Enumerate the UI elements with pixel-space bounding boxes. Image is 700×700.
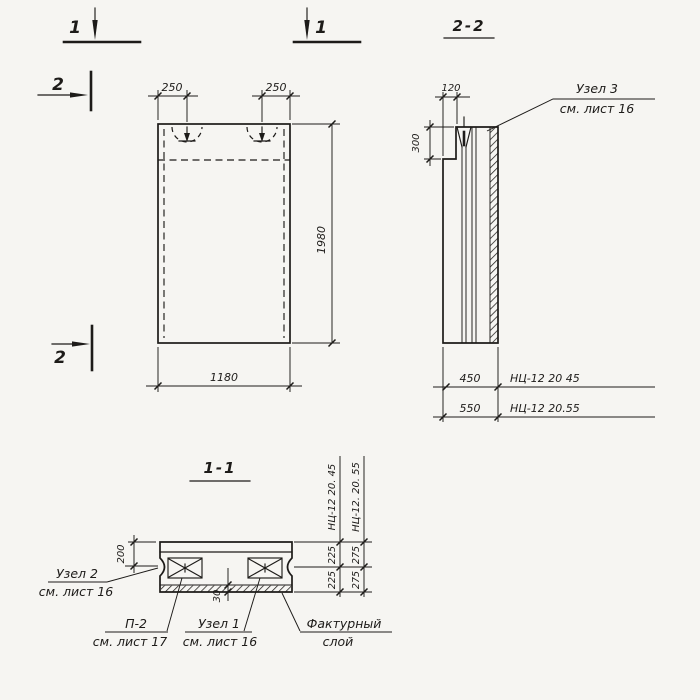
callout-node1-title: Узел 1 (198, 616, 240, 631)
callout-facing-subtitle: слой (323, 634, 354, 649)
dim-450-value: 450 (460, 372, 481, 385)
cut-2-top-label: 2 (52, 75, 64, 95)
callout-node2-title: Узел 2 (56, 566, 98, 581)
callout-p2-sheet-ref: см. лист 17 (93, 634, 167, 649)
dim-550-value: 550 (460, 402, 481, 415)
dim-225-top-value: 225 (327, 546, 338, 564)
technical-drawing-canvas: 1 1 2 2 (0, 0, 700, 700)
section-1-1-title: 1-1 (203, 459, 236, 477)
dim-250-right-value: 250 (266, 81, 287, 94)
dim-200-value: 200 (116, 544, 127, 563)
dim-1980-value: 1980 (315, 226, 328, 254)
callout-p2-title: П-2 (125, 616, 147, 631)
mark-nc12-20-55: НЦ-12 20.55 (510, 402, 580, 415)
callout-node3-title: Узел 3 (576, 81, 618, 96)
mark-nc12-20-45: НЦ-12 20 45 (510, 372, 580, 385)
dim-275-bottom-value: 275 (351, 571, 362, 589)
callout-node2-sheet-ref: см. лист 16 (39, 584, 113, 599)
facing-layer-hatch (491, 128, 498, 342)
callout-facing-title: Фактурный (307, 616, 382, 631)
callout-node1-sheet-ref: см. лист 16 (183, 634, 257, 649)
dim-275-top-value: 275 (351, 546, 362, 564)
section-2-2-title: 2-2 (452, 17, 485, 35)
col-45-mark: НЦ-12 20. 45 (327, 464, 338, 531)
cut-2-bottom-label: 2 (54, 348, 66, 368)
dim-225-bottom-value: 225 (327, 571, 338, 589)
dim-250-left-value: 250 (162, 81, 183, 94)
dim-300-value: 300 (411, 133, 422, 152)
dim-120-value: 120 (441, 83, 460, 94)
dim-30-value: 30 (212, 590, 223, 603)
col-55-mark: НЦ-12. 20. 55 (351, 462, 362, 532)
cut-1-right-label: 1 (315, 18, 327, 38)
callout-node3-sheet-ref: см. лист 16 (560, 101, 634, 116)
cut-1-left-label: 1 (69, 18, 81, 38)
dim-1180-value: 1180 (210, 371, 238, 384)
